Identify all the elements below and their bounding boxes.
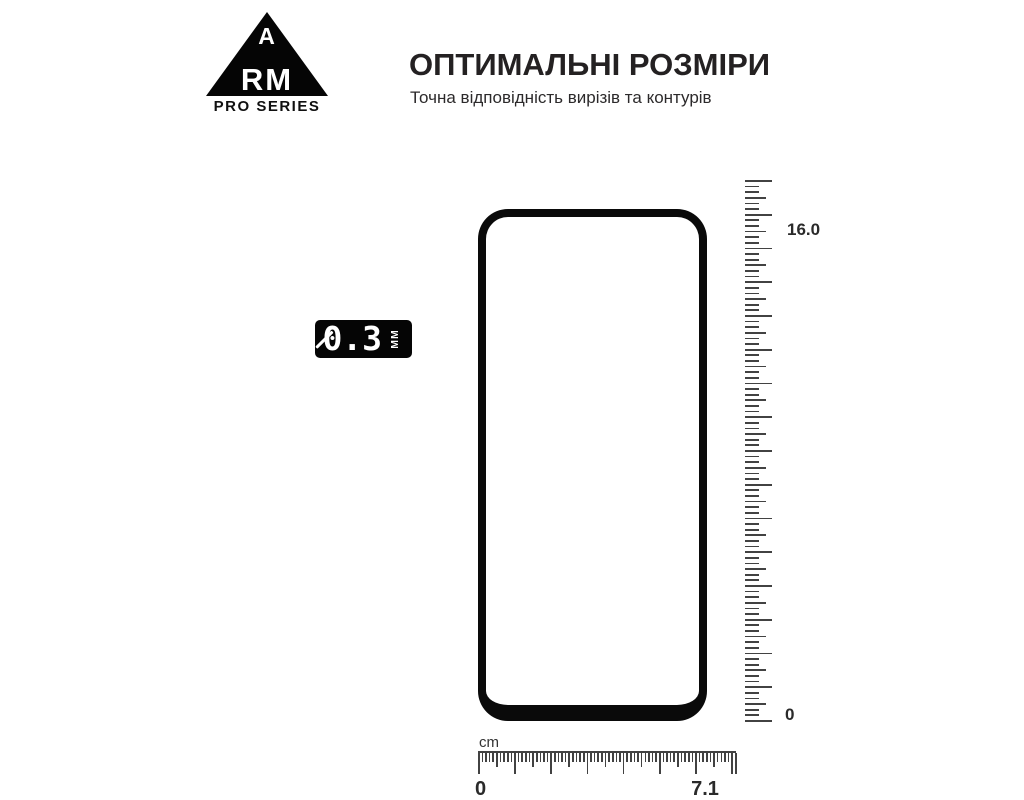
- vertical-ruler-tick: [745, 349, 772, 351]
- thickness-unit: ММ: [389, 329, 401, 349]
- vertical-ruler-tick: [745, 585, 772, 587]
- vertical-ruler-tick: [745, 456, 759, 458]
- vertical-ruler-tick: [745, 225, 759, 227]
- vertical-ruler-tick: [745, 518, 772, 520]
- vertical-ruler-tick: [745, 630, 759, 632]
- vertical-ruler-min-label: 0: [785, 705, 794, 725]
- vertical-ruler-tick: [745, 669, 766, 671]
- logo-letter-a: A: [206, 25, 328, 48]
- page-subtitle: Точна відповідність вирізів та контурів: [410, 88, 770, 108]
- horizontal-ruler-tick: [681, 753, 683, 762]
- vertical-ruler-tick: [745, 287, 759, 289]
- horizontal-ruler-tick: [561, 753, 563, 762]
- horizontal-ruler-tick: [648, 753, 650, 762]
- page: A RM PRO SERIES ОПТИМАЛЬНІ РОЗМІРИ Точна…: [0, 0, 1024, 800]
- vertical-ruler-tick: [745, 281, 772, 283]
- horizontal-ruler-tick: [634, 753, 636, 762]
- horizontal-ruler-tick: [521, 753, 523, 762]
- vertical-ruler-tick: [745, 444, 759, 446]
- vertical-ruler-tick: [745, 304, 759, 306]
- vertical-ruler-tick: [745, 253, 759, 255]
- vertical-ruler-tick: [745, 658, 759, 660]
- vertical-ruler-tick: [745, 529, 759, 531]
- horizontal-ruler-tick: [717, 753, 719, 762]
- vertical-ruler-tick: [745, 433, 766, 435]
- horizontal-ruler-tick: [540, 753, 542, 762]
- vertical-ruler-tick: [745, 681, 759, 683]
- horizontal-ruler-tick: [612, 753, 614, 762]
- horizontal-ruler-tick: [565, 753, 567, 762]
- horizontal-ruler-tick: [630, 753, 632, 762]
- vertical-ruler-tick: [745, 332, 766, 334]
- vertical-ruler-tick: [745, 422, 759, 424]
- horizontal-ruler-tick: [492, 753, 494, 762]
- vertical-ruler-tick: [745, 512, 759, 514]
- horizontal-ruler-tick: [645, 753, 647, 762]
- horizontal-ruler-tick: [511, 753, 513, 762]
- horizontal-ruler-tick: [601, 753, 603, 762]
- vertical-ruler-tick: [745, 293, 759, 295]
- vertical-ruler-tick: [745, 394, 759, 396]
- horizontal-ruler-tick: [626, 753, 628, 762]
- vertical-ruler-tick: [745, 478, 759, 480]
- logo-letters-rm: RM: [206, 64, 328, 95]
- horizontal-ruler-tick: [594, 753, 596, 762]
- vertical-ruler-tick: [745, 439, 759, 441]
- brand-triangle-mark: A RM: [206, 12, 328, 96]
- vertical-ruler-tick: [745, 624, 759, 626]
- horizontal-ruler-tick: [706, 753, 708, 762]
- horizontal-ruler-tick: [695, 753, 697, 774]
- vertical-ruler-tick: [745, 534, 766, 536]
- vertical-ruler-tick: [745, 709, 759, 711]
- horizontal-ruler-tick: [721, 753, 723, 762]
- horizontal-ruler-tick: [692, 753, 694, 762]
- vertical-ruler-tick: [745, 203, 759, 205]
- horizontal-ruler-tick: [536, 753, 538, 762]
- horizontal-ruler-tick: [735, 753, 737, 774]
- vertical-ruler-tick: [745, 523, 759, 525]
- horizontal-ruler-tick: [554, 753, 556, 762]
- vertical-ruler-tick: [745, 698, 759, 700]
- vertical-ruler-tick: [745, 264, 766, 266]
- horizontal-ruler-tick: [489, 753, 491, 762]
- vertical-ruler-ticks: [745, 180, 773, 721]
- horizontal-ruler-tick: [590, 753, 592, 762]
- vertical-ruler-tick: [745, 551, 772, 553]
- vertical-ruler-tick: [745, 270, 759, 272]
- horizontal-ruler-max-label: 7.1: [691, 778, 719, 800]
- horizontal-ruler-tick: [666, 753, 668, 762]
- vertical-ruler-tick: [745, 208, 759, 210]
- vertical-ruler: 16.0 0: [745, 180, 830, 728]
- horizontal-ruler-tick: [576, 753, 578, 762]
- vertical-ruler-tick: [745, 641, 759, 643]
- horizontal-ruler-tick: [673, 753, 675, 762]
- horizontal-ruler-tick: [637, 753, 639, 762]
- vertical-ruler-tick: [745, 197, 766, 199]
- vertical-ruler-tick: [745, 473, 759, 475]
- vertical-ruler-tick: [745, 248, 772, 250]
- vertical-ruler-tick: [745, 326, 759, 328]
- vertical-ruler-tick: [745, 703, 766, 705]
- horizontal-ruler-tick: [728, 753, 730, 762]
- vertical-ruler-tick: [745, 180, 772, 182]
- vertical-ruler-tick: [745, 596, 759, 598]
- vertical-ruler-tick: [745, 591, 759, 593]
- vertical-ruler-tick: [745, 298, 766, 300]
- vertical-ruler-tick: [745, 563, 759, 565]
- vertical-ruler-tick: [745, 231, 766, 233]
- horizontal-ruler-tick: [702, 753, 704, 762]
- vertical-ruler-tick: [745, 366, 766, 368]
- vertical-ruler-tick: [745, 619, 772, 621]
- horizontal-ruler-tick: [677, 753, 679, 767]
- horizontal-ruler-tick: [568, 753, 570, 767]
- horizontal-ruler-tick: [670, 753, 672, 762]
- horizontal-ruler-ticks: [478, 753, 736, 775]
- vertical-ruler-tick: [745, 214, 772, 216]
- horizontal-ruler-tick: [496, 753, 498, 767]
- horizontal-ruler-tick: [623, 753, 625, 774]
- horizontal-ruler-tick: [616, 753, 618, 762]
- horizontal-ruler-tick: [518, 753, 520, 762]
- vertical-ruler-tick: [745, 495, 759, 497]
- vertical-ruler-tick: [745, 309, 759, 311]
- vertical-ruler-tick: [745, 338, 759, 340]
- vertical-ruler-tick: [745, 383, 772, 385]
- vertical-ruler-tick: [745, 484, 772, 486]
- horizontal-ruler-tick: [731, 753, 733, 774]
- vertical-ruler-tick: [745, 377, 759, 379]
- horizontal-ruler-tick: [608, 753, 610, 762]
- vertical-ruler-tick: [745, 371, 759, 373]
- vertical-ruler-tick: [745, 405, 759, 407]
- horizontal-ruler-tick: [500, 753, 502, 762]
- vertical-ruler-tick: [745, 579, 759, 581]
- vertical-ruler-tick: [745, 686, 772, 688]
- horizontal-ruler-tick: [659, 753, 661, 774]
- horizontal-ruler-tick: [724, 753, 726, 762]
- horizontal-ruler-tick: [587, 753, 589, 774]
- horizontal-ruler-tick: [543, 753, 545, 762]
- vertical-ruler-tick: [745, 450, 772, 452]
- horizontal-ruler-tick: [532, 753, 534, 767]
- vertical-ruler-tick: [745, 242, 759, 244]
- screen-protector-outline: [478, 209, 707, 721]
- vertical-ruler-tick: [745, 720, 772, 722]
- horizontal-ruler-tick: [482, 753, 484, 762]
- vertical-ruler-tick: [745, 540, 759, 542]
- horizontal-ruler-tick: [583, 753, 585, 762]
- vertical-ruler-tick: [745, 219, 759, 221]
- thickness-value: 0.3: [322, 320, 382, 358]
- logo-series-label: PRO SERIES: [205, 98, 329, 115]
- vertical-ruler-tick: [745, 467, 766, 469]
- horizontal-ruler: cm 0 7.1: [478, 734, 746, 800]
- horizontal-ruler-tick: [688, 753, 690, 762]
- horizontal-ruler-tick: [547, 753, 549, 762]
- vertical-ruler-tick: [745, 259, 759, 261]
- horizontal-ruler-tick: [605, 753, 607, 767]
- horizontal-ruler-tick: [478, 753, 480, 774]
- page-header: ОПТИМАЛЬНІ РОЗМІРИ Точна відповідність в…: [409, 47, 770, 108]
- vertical-ruler-tick: [745, 321, 759, 323]
- horizontal-ruler-unit-label: cm: [479, 734, 499, 751]
- vertical-ruler-tick: [745, 664, 759, 666]
- horizontal-ruler-tick: [507, 753, 509, 762]
- vertical-ruler-tick: [745, 546, 759, 548]
- horizontal-ruler-tick: [485, 753, 487, 762]
- vertical-ruler-tick: [745, 506, 759, 508]
- vertical-ruler-tick: [745, 276, 759, 278]
- vertical-ruler-tick: [745, 574, 759, 576]
- horizontal-ruler-tick: [655, 753, 657, 762]
- vertical-ruler-tick: [745, 411, 759, 413]
- vertical-ruler-tick: [745, 343, 759, 345]
- vertical-ruler-tick: [745, 501, 766, 503]
- vertical-ruler-tick: [745, 186, 759, 188]
- thickness-badge: 0.3 ММ: [315, 320, 412, 358]
- horizontal-ruler-tick: [579, 753, 581, 762]
- vertical-ruler-tick: [745, 613, 759, 615]
- vertical-ruler-tick: [745, 692, 759, 694]
- horizontal-ruler-tick: [619, 753, 621, 762]
- horizontal-ruler-tick: [529, 753, 531, 762]
- horizontal-ruler-min-label: 0: [475, 778, 486, 800]
- horizontal-ruler-tick: [572, 753, 574, 762]
- vertical-ruler-tick: [745, 428, 759, 430]
- horizontal-ruler-tick: [550, 753, 552, 774]
- horizontal-ruler-tick: [641, 753, 643, 767]
- vertical-ruler-tick: [745, 399, 766, 401]
- vertical-ruler-tick: [745, 636, 766, 638]
- horizontal-ruler-tick: [514, 753, 516, 774]
- vertical-ruler-tick: [745, 191, 759, 193]
- vertical-ruler-tick: [745, 557, 759, 559]
- vertical-ruler-tick: [745, 461, 759, 463]
- vertical-ruler-tick: [745, 608, 759, 610]
- vertical-ruler-tick: [745, 354, 759, 356]
- vertical-ruler-tick: [745, 675, 759, 677]
- horizontal-ruler-tick: [525, 753, 527, 762]
- vertical-ruler-tick: [745, 568, 766, 570]
- vertical-ruler-tick: [745, 360, 759, 362]
- horizontal-ruler-tick: [597, 753, 599, 762]
- horizontal-ruler-tick: [503, 753, 505, 762]
- horizontal-ruler-tick: [713, 753, 715, 767]
- horizontal-ruler-tick: [684, 753, 686, 762]
- vertical-ruler-tick: [745, 489, 759, 491]
- vertical-ruler-max-label: 16.0: [787, 220, 820, 240]
- brand-logo: A RM PRO SERIES: [205, 12, 329, 115]
- horizontal-ruler-tick: [699, 753, 701, 762]
- horizontal-ruler-tick: [652, 753, 654, 762]
- vertical-ruler-tick: [745, 602, 766, 604]
- vertical-ruler-tick: [745, 236, 759, 238]
- vertical-ruler-tick: [745, 714, 759, 716]
- vertical-ruler-tick: [745, 647, 759, 649]
- vertical-ruler-tick: [745, 315, 772, 317]
- vertical-ruler-tick: [745, 388, 759, 390]
- horizontal-ruler-tick: [558, 753, 560, 762]
- vertical-ruler-tick: [745, 653, 772, 655]
- vertical-ruler-tick: [745, 416, 772, 418]
- horizontal-ruler-tick: [710, 753, 712, 762]
- page-title: ОПТИМАЛЬНІ РОЗМІРИ: [409, 47, 770, 83]
- horizontal-ruler-tick: [663, 753, 665, 762]
